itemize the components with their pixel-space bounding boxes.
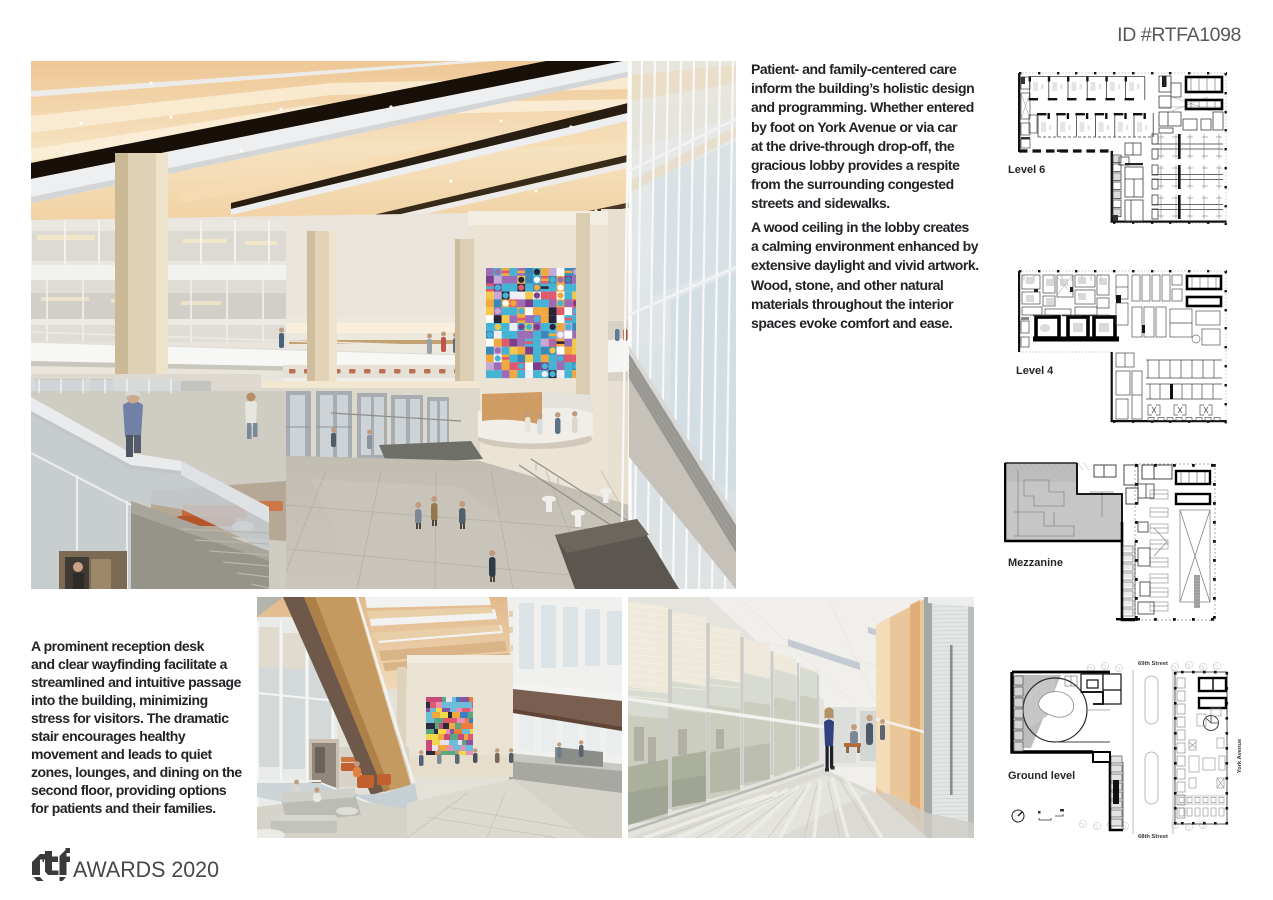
svg-text:York Avenue: York Avenue [1237, 738, 1243, 773]
svg-text:68th Street: 68th Street [1138, 834, 1168, 840]
svg-text:69th Street: 69th Street [1138, 661, 1168, 667]
svg-text:AWARDS 2020: AWARDS 2020 [73, 857, 219, 882]
